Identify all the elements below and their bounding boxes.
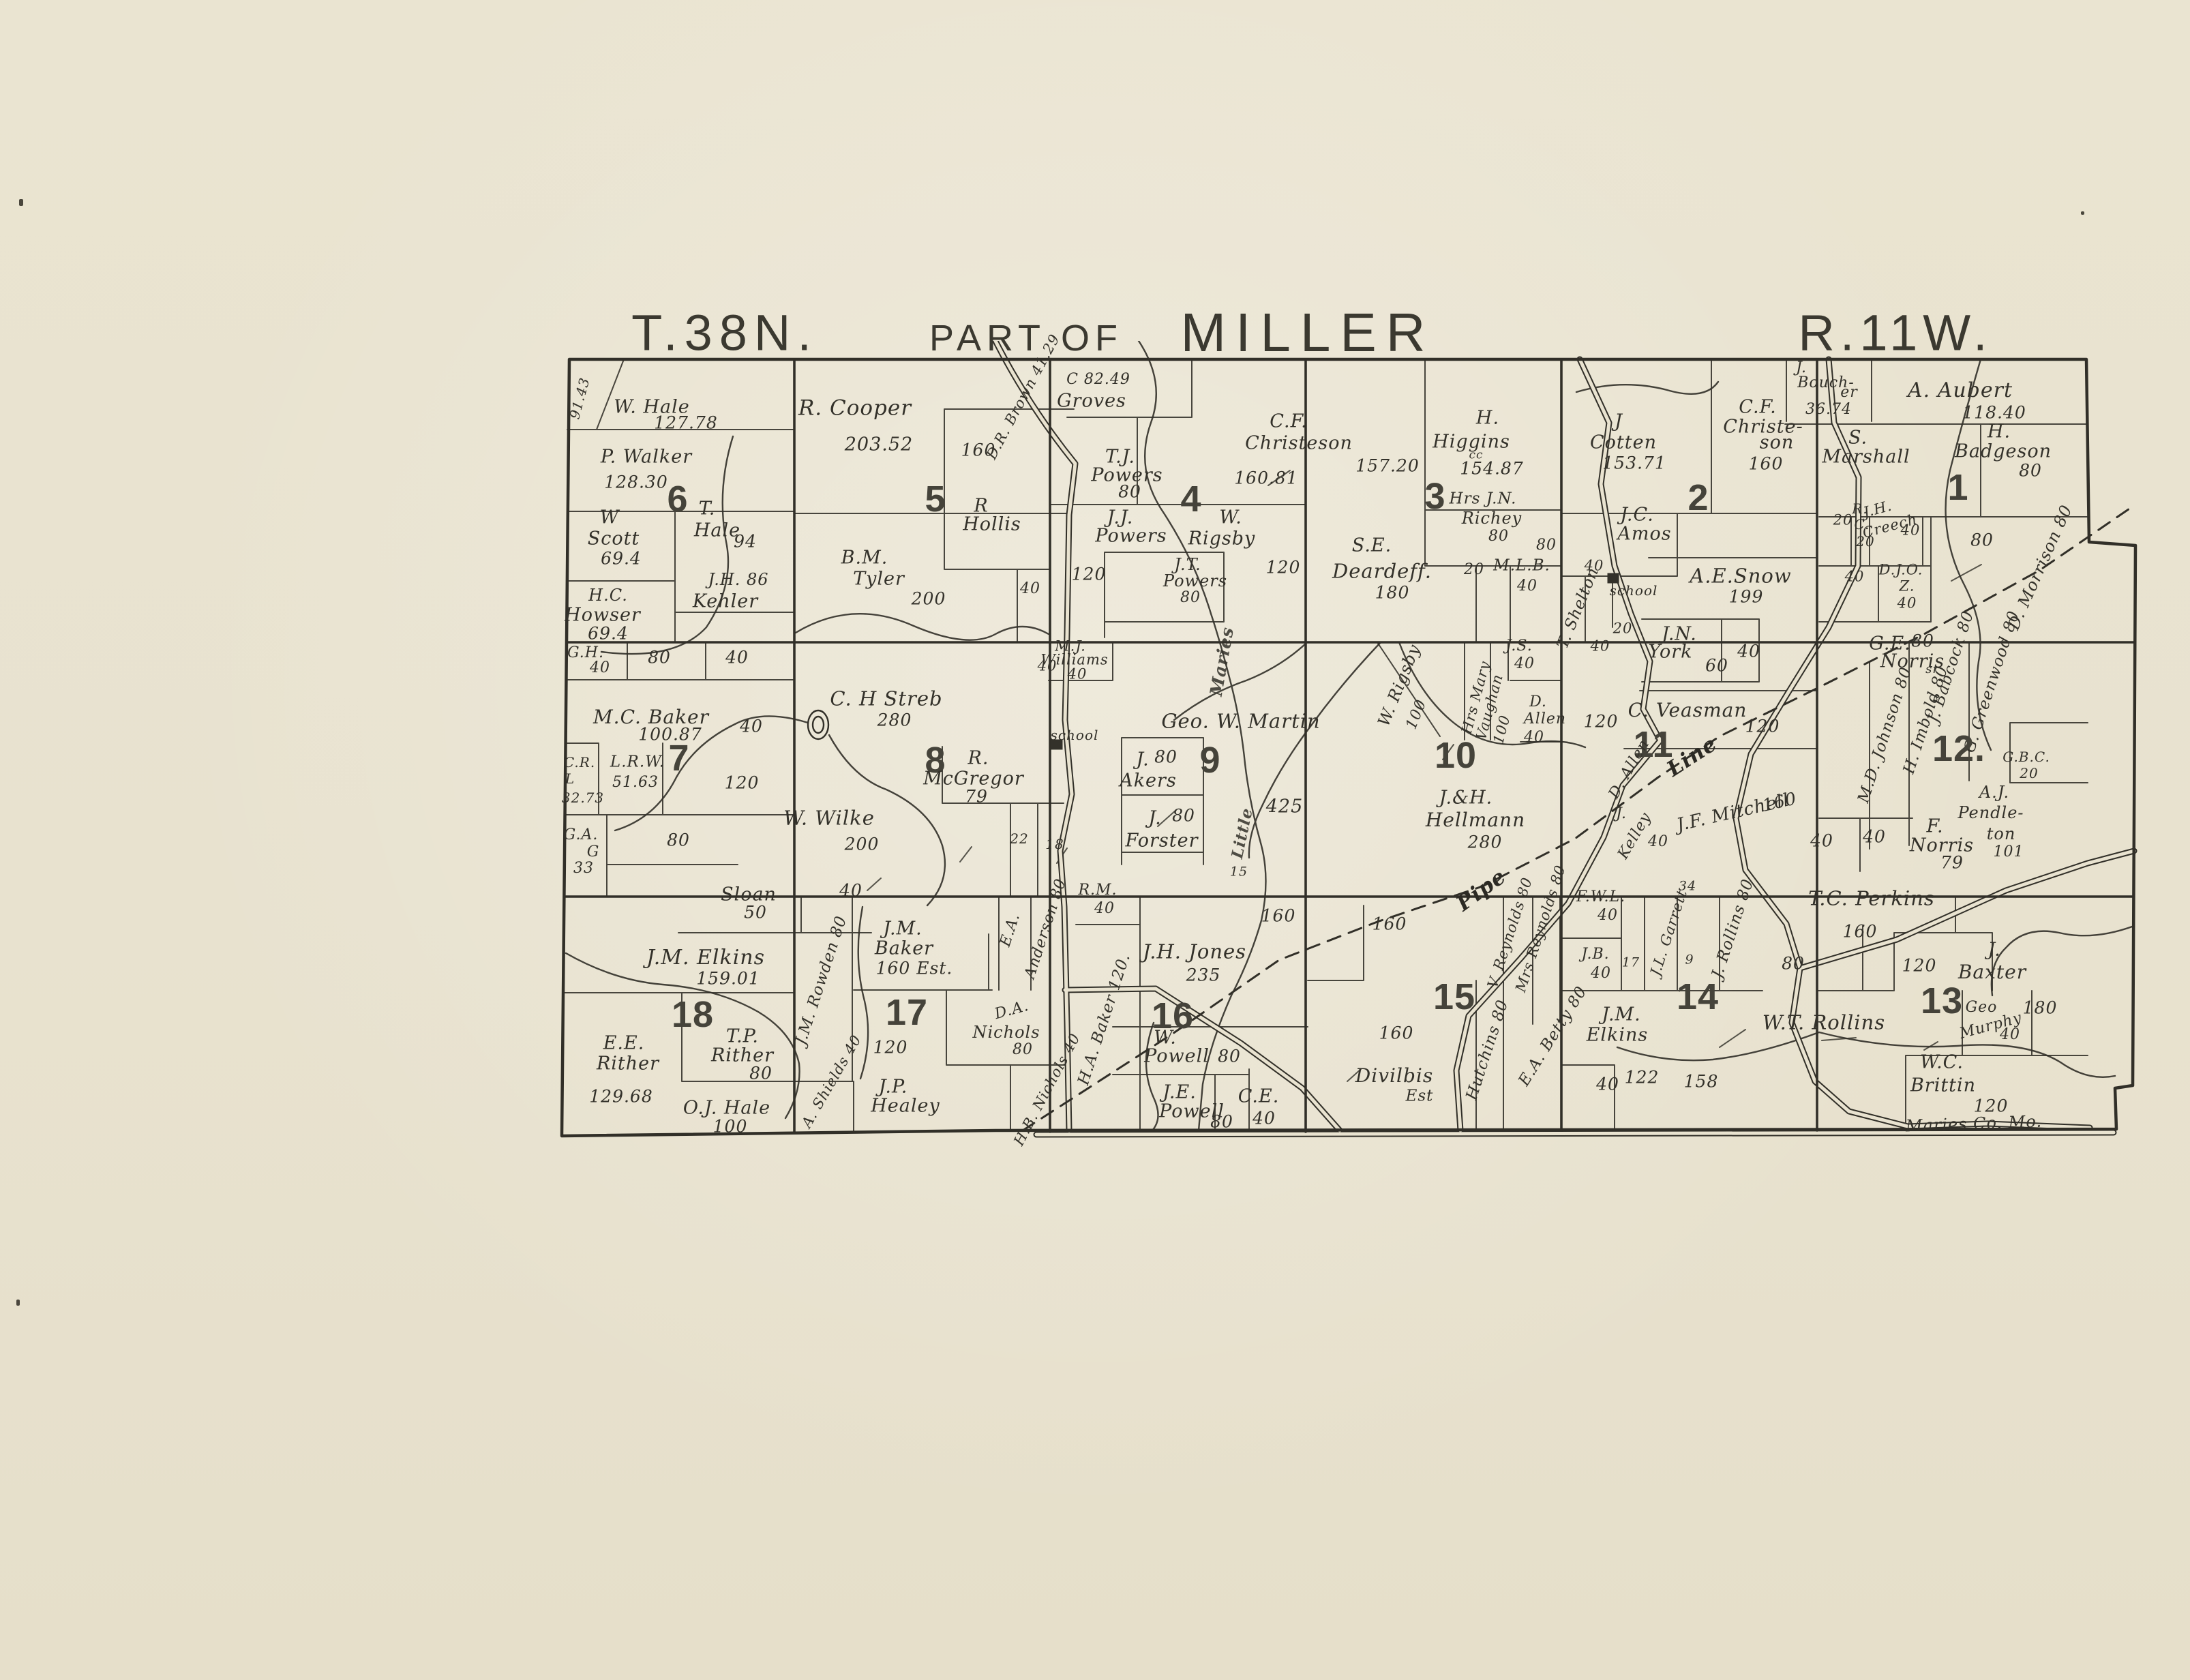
- label-owner: D.J.O.: [1879, 563, 1923, 577]
- label-owner: D.: [1529, 695, 1547, 710]
- label-owner: Hrs J.N.: [1450, 492, 1517, 507]
- label-owner: J.C.: [1620, 506, 1654, 524]
- label-acreage: 36.74: [1805, 402, 1852, 417]
- label-acreage: 80: [1172, 807, 1195, 824]
- label-acreage: 18: [1045, 837, 1064, 851]
- label-owner: Amos: [1617, 525, 1671, 543]
- label-acreage: 40: [590, 661, 610, 676]
- paper-speck: [16, 1300, 20, 1306]
- label-acreage: 40: [1094, 901, 1115, 916]
- label-acreage: 40: [1591, 966, 1611, 981]
- label-acreage: 69.4: [601, 550, 642, 567]
- label-acreage: 79: [1940, 854, 1964, 871]
- label-owner: Rither: [597, 1055, 659, 1073]
- label-acreage: 80: [1012, 1042, 1033, 1057]
- label-owner: G: [587, 845, 600, 860]
- label-owner: Divilbis: [1355, 1066, 1433, 1085]
- label-owner: G.H.: [567, 646, 604, 661]
- label-owner: S.E.: [1352, 537, 1392, 555]
- label-owner: J.S.: [1505, 639, 1532, 654]
- label-owner: C.F.: [1739, 398, 1776, 417]
- label-acreage: 40: [1737, 643, 1760, 660]
- label-acreage: 122: [1625, 1069, 1660, 1086]
- label-owner: Allen: [1524, 712, 1566, 727]
- label-acreage: 80: [1210, 1113, 1233, 1130]
- label-acreage: 80: [1180, 590, 1201, 605]
- label-acreage: 100: [713, 1118, 748, 1135]
- label-acreage: 153.71: [1602, 455, 1666, 472]
- label-owner: J.: [1796, 361, 1807, 376]
- label-acreage: 40: [1038, 659, 1057, 674]
- label-owner: H.: [1987, 423, 2011, 441]
- label-owner: W.C.: [1920, 1053, 1964, 1072]
- label-acreage: 60: [1705, 657, 1728, 674]
- label-acreage: 80: [648, 649, 671, 666]
- paper-speck: [2081, 211, 2084, 215]
- label-acreage: 80: [749, 1065, 772, 1082]
- label-acreage: 9: [1685, 954, 1694, 967]
- label-owner: Badgeson: [1955, 442, 2052, 461]
- label-owner: J.P.: [879, 1078, 908, 1096]
- label-acreage: 80: [1118, 483, 1141, 500]
- label-owner: Z.: [1900, 580, 1915, 594]
- label-acreage: 80: [1970, 532, 1994, 549]
- label-acreage: 280: [877, 712, 912, 729]
- label-owner: Howser: [565, 606, 641, 625]
- label-acreage: 120: [1974, 1098, 2009, 1115]
- label-acreage: 33: [573, 861, 594, 876]
- label-acreage: 20: [2020, 766, 2038, 780]
- label-owner: W.T. Rollins: [1762, 1013, 1885, 1033]
- label-acreage: 40: [1252, 1110, 1276, 1127]
- label-owner: C.E.: [1238, 1087, 1280, 1106]
- label-acreage: 51.63: [612, 775, 659, 790]
- label-owner: Hollis: [963, 515, 1021, 534]
- label-section: 10: [1435, 737, 1477, 774]
- label-owner: J.: [1987, 941, 2000, 959]
- label-owner: T.: [699, 500, 716, 518]
- plat-map: 91.43W. Hale127.78P. Walker128.306WScott…: [559, 341, 2148, 1139]
- label-owner: J.&H.: [1439, 789, 1492, 807]
- label-owner: Sloan: [721, 886, 777, 904]
- label-owner: L.R.W.: [610, 755, 665, 770]
- label-owner: F.W.L.: [1576, 890, 1625, 905]
- little-maries-river: [1249, 642, 1381, 858]
- label-acreage: 40: [1517, 579, 1537, 594]
- label-owner: Brittin: [1910, 1077, 1976, 1095]
- label-owner: J.: [1136, 751, 1149, 769]
- label-owner: J.H. 86: [708, 571, 768, 588]
- label-owner: E.E.: [603, 1034, 645, 1053]
- label-owner: Baxter: [1958, 963, 2026, 982]
- label-acreage: 200: [845, 836, 880, 853]
- label-acreage: 40: [1020, 582, 1040, 597]
- label-owner: W.: [1154, 1029, 1177, 1047]
- label-section: 15: [1433, 978, 1475, 1015]
- label-place: Maries Co. Mo.: [1906, 1113, 2043, 1135]
- label-owner: Groves: [1057, 392, 1126, 410]
- label-owner: C. H Streb: [830, 689, 942, 709]
- label-acreage: 80: [1218, 1048, 1241, 1065]
- label-owner: Kehler: [693, 592, 758, 611]
- label-section: 1: [1947, 469, 1968, 506]
- label-owner: O.J. Hale: [683, 1099, 770, 1117]
- label-owner: J.: [1616, 807, 1627, 822]
- label-acreage: 20: [1613, 622, 1633, 636]
- label-section: 13: [1921, 982, 1963, 1019]
- label-owner: Geo: [1966, 1000, 1998, 1015]
- label-owner: Richey: [1462, 510, 1522, 526]
- label-owner: A.J.: [1979, 784, 2009, 800]
- label-acreage: 180: [1375, 584, 1410, 601]
- label-acreage: 127.78: [654, 415, 717, 432]
- label-acreage: 425: [1266, 798, 1304, 816]
- label-acreage: 20: [1464, 562, 1484, 577]
- label-acreage: 160: [1372, 916, 1407, 933]
- label-acreage: 40: [1585, 559, 1604, 573]
- label-acreage: 20: [1833, 513, 1853, 528]
- label-owner: J.T.: [1174, 556, 1201, 573]
- label-section: 12.: [1932, 730, 1985, 767]
- label-section: 2: [1687, 479, 1709, 516]
- label-owner: A. Aubert: [1908, 380, 2013, 401]
- label-section: 17: [886, 994, 928, 1031]
- label-owner: H.: [1476, 409, 1499, 427]
- label-acreage: 69.4: [588, 625, 629, 642]
- label-acreage: 80: [1536, 538, 1557, 553]
- label-owner: F.: [1926, 817, 1943, 836]
- label-acreage: 158: [1684, 1073, 1719, 1090]
- label-acreage: 40: [725, 649, 749, 666]
- label-acreage: 40: [1524, 730, 1544, 745]
- label-acreage: 280: [1468, 834, 1503, 851]
- label-owner: L: [565, 772, 575, 785]
- label-owner: Powers: [1095, 527, 1167, 545]
- label-owner: R.M.: [1078, 883, 1117, 898]
- pond: [808, 710, 828, 739]
- label-owner: R. Cooper: [798, 398, 912, 419]
- label-acreage: 120: [873, 1039, 908, 1056]
- label-owner: Rigsby: [1188, 530, 1256, 548]
- label-acreage: 32.73: [562, 791, 604, 805]
- label-acreage: 22: [1010, 832, 1028, 845]
- label-owner: W: [600, 509, 620, 527]
- label-acreage: 80: [1911, 633, 1934, 650]
- label-owner: H.C.: [588, 587, 628, 603]
- label-acreage: 94: [734, 533, 757, 550]
- label-owner: C 82.49: [1066, 372, 1130, 387]
- label-acreage: 80: [1488, 529, 1509, 544]
- label-owner: McGregor: [923, 770, 1024, 788]
- label-owner: C.R.: [564, 755, 595, 769]
- label-owner: son: [1760, 434, 1795, 452]
- label-acreage: 159.01: [696, 970, 760, 987]
- label-owner: J.: [1148, 809, 1161, 828]
- label-acreage: 40: [740, 718, 763, 735]
- label-owner: J.M. Elkins: [646, 948, 765, 968]
- label-acreage: 34: [1679, 880, 1696, 893]
- label-acreage: 128.30: [604, 474, 667, 491]
- label-acreage: 80: [1782, 955, 1805, 972]
- label-acreage: 40: [2000, 1027, 2020, 1042]
- label-acreage: 40: [1596, 1076, 1619, 1093]
- label-owner: Cotten: [1590, 434, 1657, 452]
- label-section: 14: [1677, 978, 1719, 1015]
- label-owner: W.: [1219, 509, 1242, 527]
- label-owner: Geo. W. Martin: [1161, 712, 1320, 732]
- label-owner: Pendle-: [1957, 805, 2024, 821]
- label-owner: Elkins: [1587, 1026, 1649, 1045]
- school-marker: [1051, 740, 1063, 750]
- label-owner: er: [1840, 385, 1858, 400]
- label-owner: S.: [1848, 429, 1867, 447]
- label-owner: J.J.: [1107, 509, 1134, 527]
- label-owner: Rither: [711, 1047, 774, 1065]
- label-owner: R.: [968, 749, 989, 768]
- paper-speck: [19, 199, 23, 206]
- label-acreage: 40: [1897, 597, 1917, 611]
- label-owner: P. Walker: [601, 448, 692, 466]
- label-owner: J.E.: [1162, 1083, 1197, 1102]
- label-owner: G.E.: [1869, 635, 1910, 653]
- label-acreage: 203.52: [845, 436, 913, 454]
- label-acreage: 40: [1845, 570, 1865, 584]
- label-acreage: 160: [1749, 455, 1784, 472]
- label-owner: Norris: [1910, 837, 1974, 855]
- label-acreage: 15: [1230, 866, 1248, 879]
- label-acreage: 129.68: [589, 1088, 652, 1105]
- label-acreage: 80: [667, 832, 690, 849]
- label-section: 6: [667, 481, 688, 517]
- label-section: 4: [1180, 481, 1201, 517]
- label-acreage: 157.20: [1355, 457, 1419, 475]
- label-owner: Powers: [1163, 573, 1227, 589]
- label-owner: Baker: [875, 940, 933, 958]
- label-acreage: 120: [725, 775, 760, 792]
- label-owner: Nichols: [972, 1024, 1040, 1040]
- label-owner: Hellmann: [1426, 811, 1525, 830]
- label-place: school: [1610, 584, 1658, 597]
- label-owner: J.M.: [1602, 1006, 1641, 1024]
- label-acreage: 120: [1584, 713, 1619, 730]
- label-owner: Akers: [1120, 772, 1177, 790]
- label-owner: G.B.C.: [2002, 750, 2050, 764]
- label-acreage: 118.40: [1962, 404, 2026, 421]
- label-acreage: 40: [1863, 828, 1886, 845]
- label-acreage: 160: [1843, 923, 1878, 940]
- label-owner: Healey: [871, 1097, 940, 1115]
- label-acreage: 180: [2023, 1000, 2058, 1017]
- label-owner: M.L.B.: [1493, 558, 1550, 574]
- label-section: 3: [1424, 478, 1445, 515]
- label-acreage: 120: [1745, 718, 1780, 735]
- label-owner: Christeson: [1245, 434, 1353, 453]
- label-section: 9: [1199, 742, 1220, 779]
- label-acreage: 160: [1379, 1025, 1414, 1042]
- label-section: 18: [672, 996, 714, 1033]
- label-acreage: 79: [965, 788, 988, 805]
- map-border: [562, 359, 2135, 1136]
- label-owner: Tyler: [853, 570, 905, 588]
- label-acreage: 160 Est.: [876, 960, 953, 977]
- label-owner: Forster: [1125, 832, 1198, 850]
- label-acreage: 120: [1902, 957, 1937, 974]
- label-owner: Deardeff.: [1332, 562, 1432, 582]
- label-acreage: 120: [1072, 566, 1107, 583]
- label-acreage: 80: [2019, 462, 2042, 479]
- label-owner: T.C. Perkins: [1808, 889, 1935, 909]
- label-section: 7: [668, 740, 689, 777]
- label-acreage: 40: [1648, 835, 1668, 850]
- label-acreage: 160.81: [1234, 470, 1297, 487]
- label-acreage: 50: [744, 904, 767, 921]
- label-owner: J.H. Jones: [1143, 942, 1246, 962]
- label-acreage: 40: [1068, 667, 1087, 682]
- label-owner: B.M.: [841, 549, 888, 567]
- label-owner: G.A.: [564, 828, 599, 843]
- label-acreage: 120: [1266, 559, 1301, 576]
- label-owner: Scott: [588, 530, 640, 548]
- label-owner: W. Wilke: [783, 809, 875, 828]
- label-owner: J.M.: [883, 920, 922, 938]
- label-acreage: 40: [1597, 908, 1618, 923]
- label-acreage: 40: [839, 882, 862, 899]
- label-acreage: 200: [912, 590, 946, 607]
- label-owner: Est: [1406, 1089, 1434, 1105]
- label-owner: J.B.: [1581, 947, 1609, 962]
- label-owner: T.P.: [726, 1027, 759, 1046]
- label-owner: Marshall: [1822, 448, 1910, 466]
- label-owner: J.N.: [1662, 625, 1697, 644]
- label-acreage: 40: [1810, 832, 1833, 850]
- label-section: 5: [925, 481, 946, 517]
- label-owner: C.F.: [1270, 412, 1307, 431]
- label-acreage: 40: [1591, 640, 1610, 654]
- label-acreage: 80: [1154, 749, 1177, 766]
- label-acreage: 235: [1186, 967, 1221, 984]
- school-marker: [1608, 573, 1619, 584]
- label-owner: T.J.: [1105, 448, 1135, 466]
- label-owner: A.E.Snow: [1690, 567, 1791, 586]
- label-acreage: 40: [1901, 524, 1921, 538]
- label-acreage: 199: [1729, 588, 1764, 605]
- label-acreage: 154.87: [1460, 460, 1523, 477]
- label-owner: C. Veasman: [1628, 701, 1747, 720]
- label-acreage: 101: [1994, 845, 2024, 860]
- label-owner: ton: [1987, 826, 2016, 842]
- label-acreage: 160: [1261, 907, 1296, 925]
- label-owner: R: [974, 497, 988, 515]
- label-acreage: 40: [1514, 657, 1535, 672]
- label-owner: J: [1615, 412, 1623, 431]
- label-owner: York: [1648, 643, 1692, 661]
- label-owner: Powell: [1144, 1047, 1210, 1066]
- label-acreage: 17: [1622, 957, 1640, 970]
